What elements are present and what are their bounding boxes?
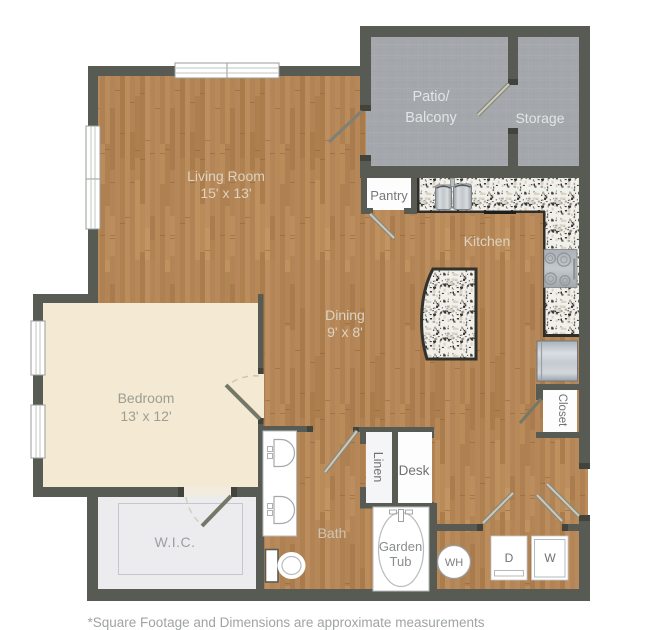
svg-text:W: W: [544, 551, 556, 565]
svg-text:D: D: [505, 551, 514, 565]
svg-text:Bath: Bath: [318, 525, 347, 541]
svg-text:Kitchen: Kitchen: [464, 233, 511, 249]
svg-text:Patio/: Patio/: [412, 89, 450, 105]
svg-text:Desk: Desk: [399, 463, 430, 478]
svg-text:Living Room: Living Room: [187, 168, 265, 184]
svg-text:Dining: Dining: [325, 307, 365, 323]
svg-text:WH: WH: [445, 557, 463, 569]
svg-text:Pantry: Pantry: [370, 188, 408, 203]
svg-text:Closet: Closet: [556, 394, 568, 427]
svg-text:Storage: Storage: [515, 110, 564, 126]
svg-text:W.I.C.: W.I.C.: [154, 534, 195, 550]
svg-text:9' x 8': 9' x 8': [327, 324, 363, 340]
svg-text:Tub: Tub: [390, 554, 412, 569]
svg-text:Garden: Garden: [379, 539, 422, 554]
svg-text:15' x 13': 15' x 13': [200, 185, 251, 201]
svg-text:13' x 12': 13' x 12': [120, 408, 171, 424]
svg-text:*Square Footage and Dimensions: *Square Footage and Dimensions are appro…: [88, 615, 485, 630]
svg-text:Balcony: Balcony: [405, 110, 457, 126]
svg-text:Linen: Linen: [371, 452, 385, 483]
svg-text:Bedroom: Bedroom: [118, 390, 175, 406]
